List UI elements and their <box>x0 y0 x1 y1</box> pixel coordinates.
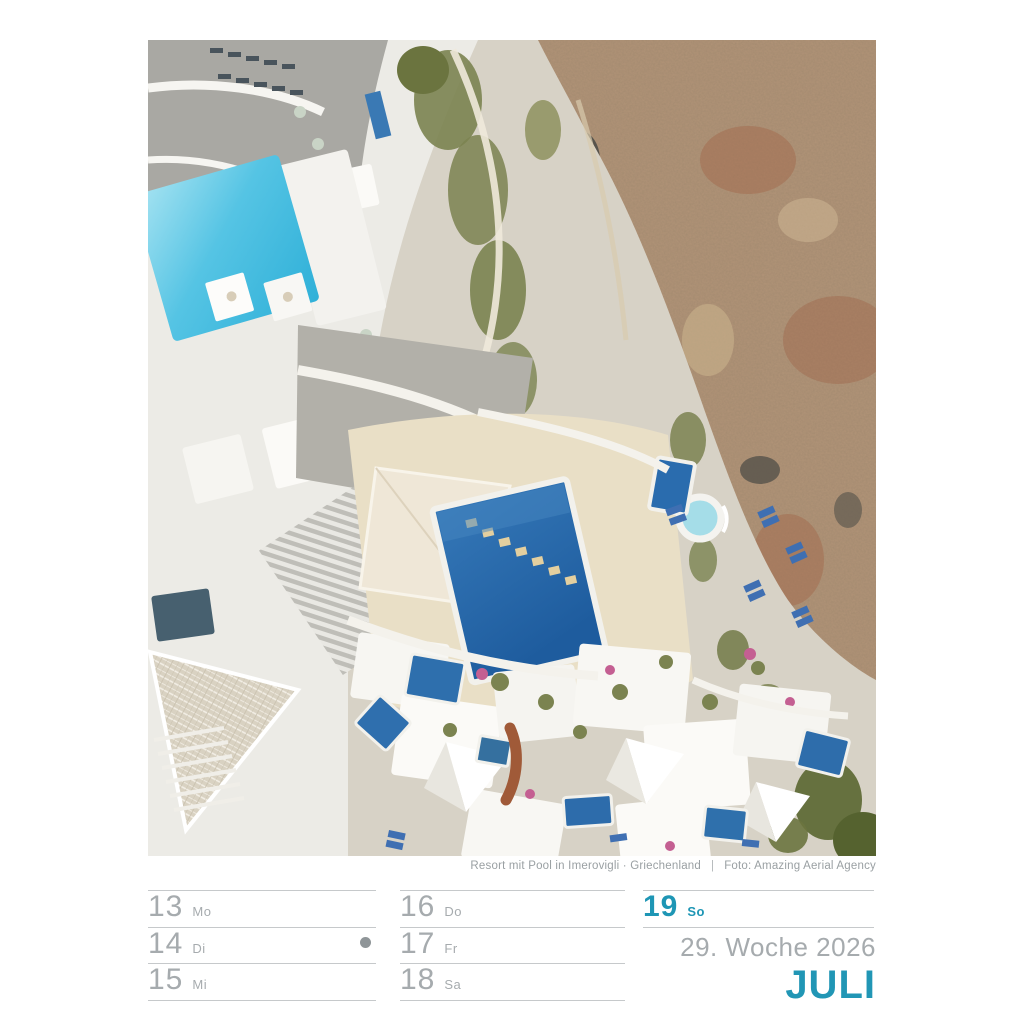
aerial-resort-photo <box>148 40 876 856</box>
date-number: 16 <box>400 894 435 920</box>
shaded-terrace <box>151 588 215 642</box>
week-label: 29. Woche 2026 <box>445 933 876 961</box>
date-number: 13 <box>148 894 183 920</box>
new-moon-icon <box>360 937 371 948</box>
day-row-13: 13 Mo <box>148 890 376 927</box>
caption-credit: Foto: Amazing Aerial Agency <box>724 860 876 872</box>
weekday-label: Do <box>444 904 462 919</box>
weekday-label: Mi <box>192 977 207 992</box>
calendar-photo <box>148 40 876 856</box>
date-number: 15 <box>148 967 183 993</box>
weekday-label: Di <box>192 941 205 956</box>
date-number-highlighted: 19 <box>643 894 678 920</box>
day-row-15: 15 Mi <box>148 963 376 1000</box>
calendar-column-1: 13 Mo 14 Di 15 Mi <box>148 890 376 1001</box>
caption-title: Resort mit Pool in Imerovigli · Griechen… <box>470 860 701 872</box>
photo-caption: Resort mit Pool in Imerovigli · Griechen… <box>148 860 876 872</box>
day-row-16: 16 Do <box>400 890 625 927</box>
month-label: JULI <box>445 964 876 1006</box>
weekday-label: Mo <box>192 904 211 919</box>
date-number: 18 <box>400 967 435 993</box>
weekday-label-highlighted: So <box>687 904 705 919</box>
day-row-19-sunday: 19 So <box>643 890 874 927</box>
caption-divider: | <box>711 860 714 872</box>
calendar-meta: 29. Woche 2026 JULI <box>445 933 876 1006</box>
date-number: 17 <box>400 931 435 957</box>
calendar-column-3: 19 So <box>643 890 874 928</box>
day-row-14: 14 Di <box>148 927 376 964</box>
date-number: 14 <box>148 931 183 957</box>
